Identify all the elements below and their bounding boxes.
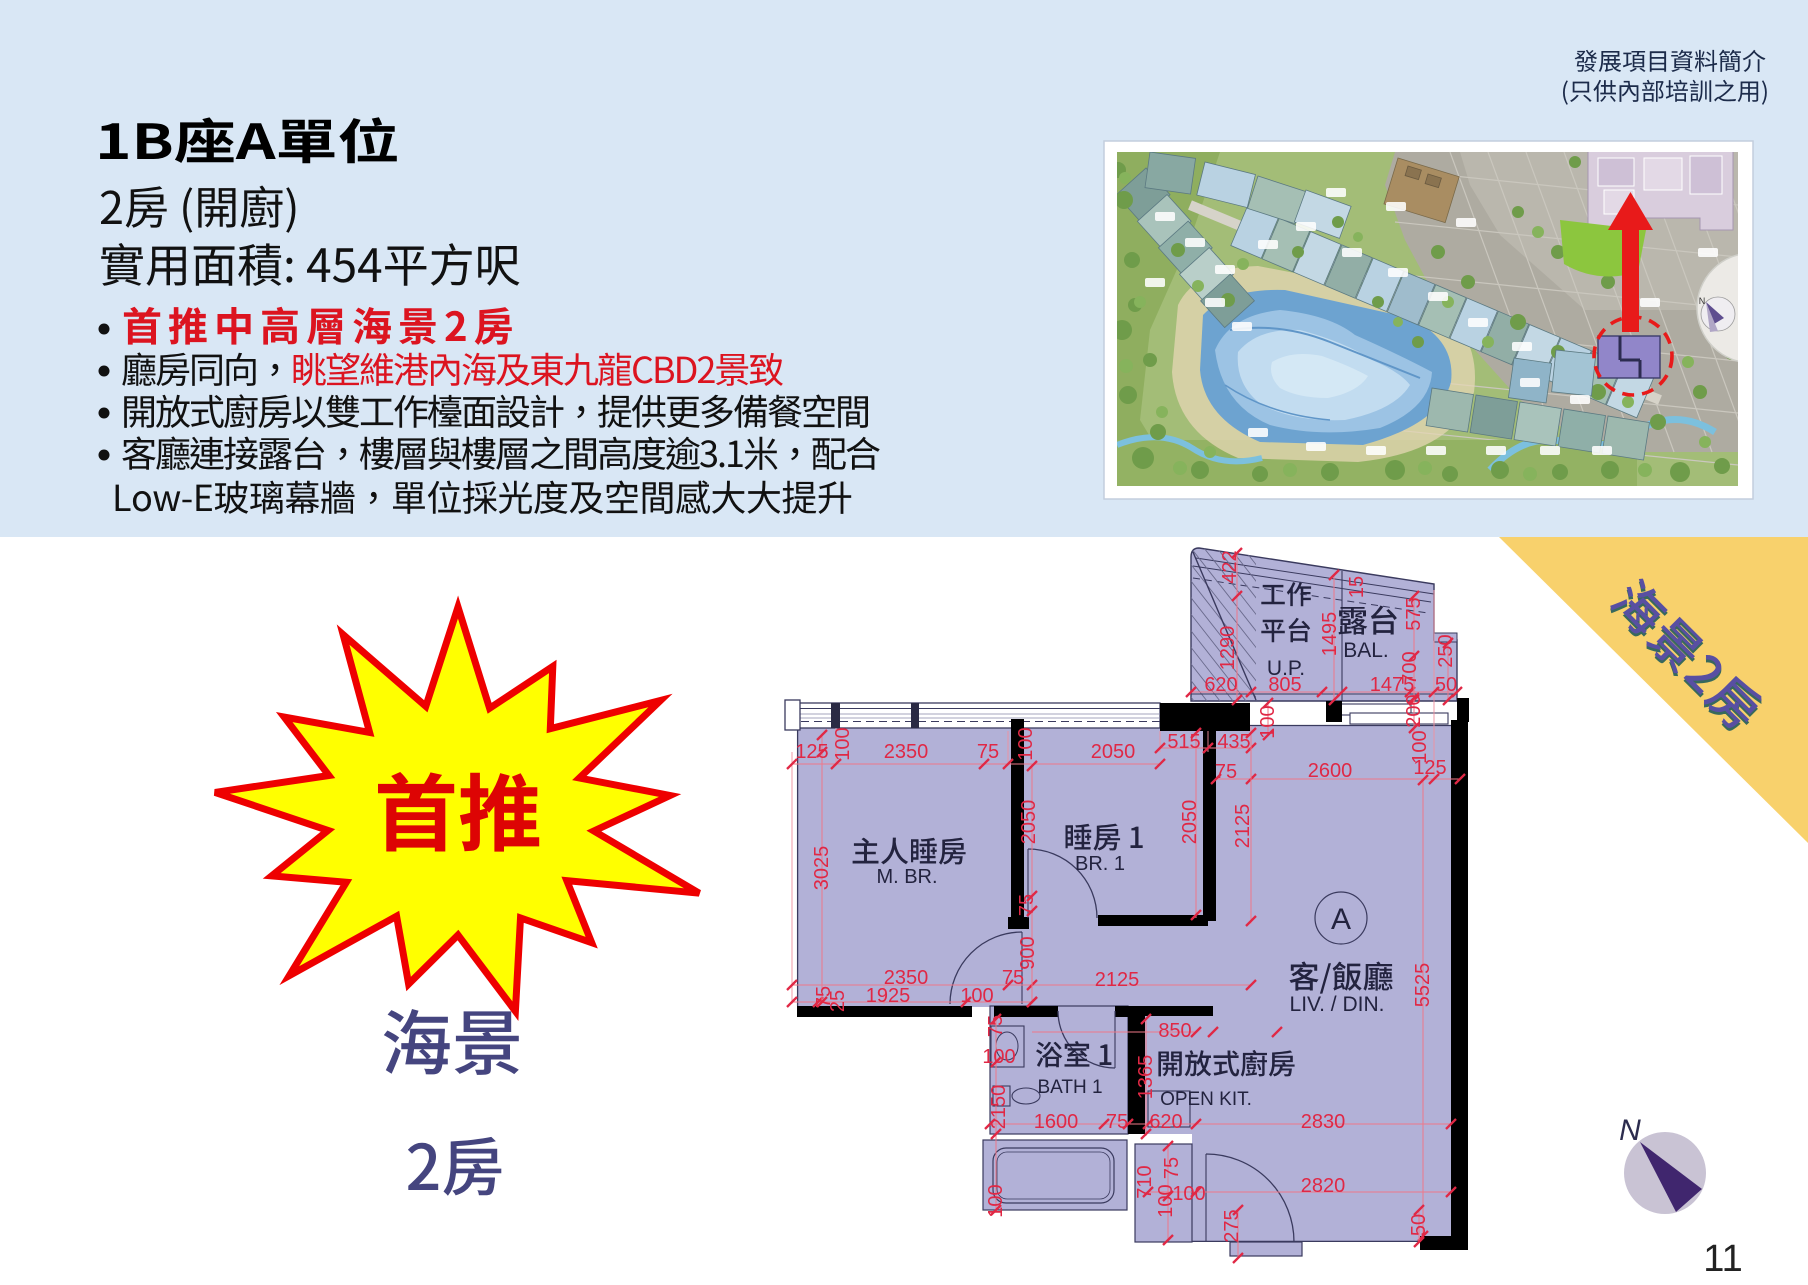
svg-text:250: 250	[1435, 634, 1457, 667]
svg-text:100: 100	[832, 727, 854, 760]
svg-text:435: 435	[1217, 731, 1250, 753]
svg-text:100: 100	[1409, 730, 1431, 763]
svg-text:25: 25	[827, 990, 849, 1012]
svg-text:50: 50	[1435, 674, 1457, 696]
svg-text:2820: 2820	[1301, 1175, 1346, 1197]
svg-text:75: 75	[1016, 894, 1038, 916]
svg-text:100: 100	[1172, 1183, 1205, 1205]
svg-text:900: 900	[1017, 936, 1039, 969]
svg-text:100: 100	[1257, 705, 1279, 738]
svg-text:75: 75	[1161, 1157, 1183, 1179]
svg-text:BR. 1: BR. 1	[1075, 853, 1125, 875]
svg-text:2050: 2050	[1018, 800, 1040, 845]
svg-text:11: 11	[1703, 1238, 1742, 1280]
svg-text:OPEN KIT.: OPEN KIT.	[1160, 1089, 1252, 1110]
svg-text:620: 620	[1149, 1111, 1182, 1133]
svg-text:15: 15	[1346, 576, 1368, 598]
svg-text:515: 515	[1167, 731, 1200, 753]
svg-text:700: 700	[1399, 651, 1421, 684]
svg-text:2600: 2600	[1308, 760, 1353, 782]
svg-text:BATH 1: BATH 1	[1037, 1077, 1102, 1098]
svg-text:1365: 1365	[1135, 1055, 1157, 1100]
svg-text:1925: 1925	[866, 985, 911, 1007]
svg-text:5525: 5525	[1412, 963, 1434, 1008]
svg-text:575: 575	[1403, 597, 1425, 630]
svg-text:805: 805	[1268, 674, 1301, 696]
svg-text:75: 75	[1215, 761, 1237, 783]
svg-text:1495: 1495	[1319, 612, 1341, 657]
svg-text:710: 710	[1134, 1165, 1156, 1198]
svg-text:N: N	[1699, 296, 1706, 306]
svg-text:50: 50	[1408, 1214, 1430, 1236]
svg-text:BAL.: BAL.	[1343, 639, 1389, 662]
svg-text:2830: 2830	[1301, 1111, 1346, 1133]
svg-text:2050: 2050	[1179, 800, 1201, 845]
svg-text:2150: 2150	[988, 1085, 1010, 1130]
svg-text:275: 275	[1221, 1209, 1243, 1242]
svg-text:N: N	[1619, 1114, 1641, 1147]
svg-text:2350: 2350	[884, 741, 929, 763]
svg-text:100: 100	[1015, 727, 1037, 760]
svg-text:100: 100	[1155, 1184, 1177, 1217]
svg-text:100: 100	[960, 985, 993, 1007]
svg-text:100: 100	[982, 1046, 1015, 1068]
svg-text:75: 75	[985, 1015, 1007, 1037]
svg-text:200: 200	[1403, 694, 1425, 727]
svg-text:100: 100	[985, 1184, 1007, 1217]
svg-text:125: 125	[795, 741, 828, 763]
svg-text:2125: 2125	[1232, 804, 1254, 849]
svg-text:1600: 1600	[1034, 1111, 1079, 1133]
svg-text:1290: 1290	[1217, 626, 1239, 671]
svg-text:LIV. / DIN.: LIV. / DIN.	[1290, 993, 1385, 1016]
svg-text:A: A	[1331, 903, 1351, 936]
svg-text:75: 75	[1106, 1111, 1128, 1133]
svg-text:2050: 2050	[1091, 741, 1136, 763]
svg-text:620: 620	[1204, 674, 1237, 696]
svg-text:3025: 3025	[811, 846, 833, 891]
svg-text:75: 75	[977, 741, 999, 763]
svg-text:850: 850	[1158, 1020, 1191, 1042]
svg-text:422: 422	[1219, 550, 1241, 583]
svg-text:M. BR.: M. BR.	[876, 866, 937, 888]
svg-text:2125: 2125	[1095, 969, 1140, 991]
